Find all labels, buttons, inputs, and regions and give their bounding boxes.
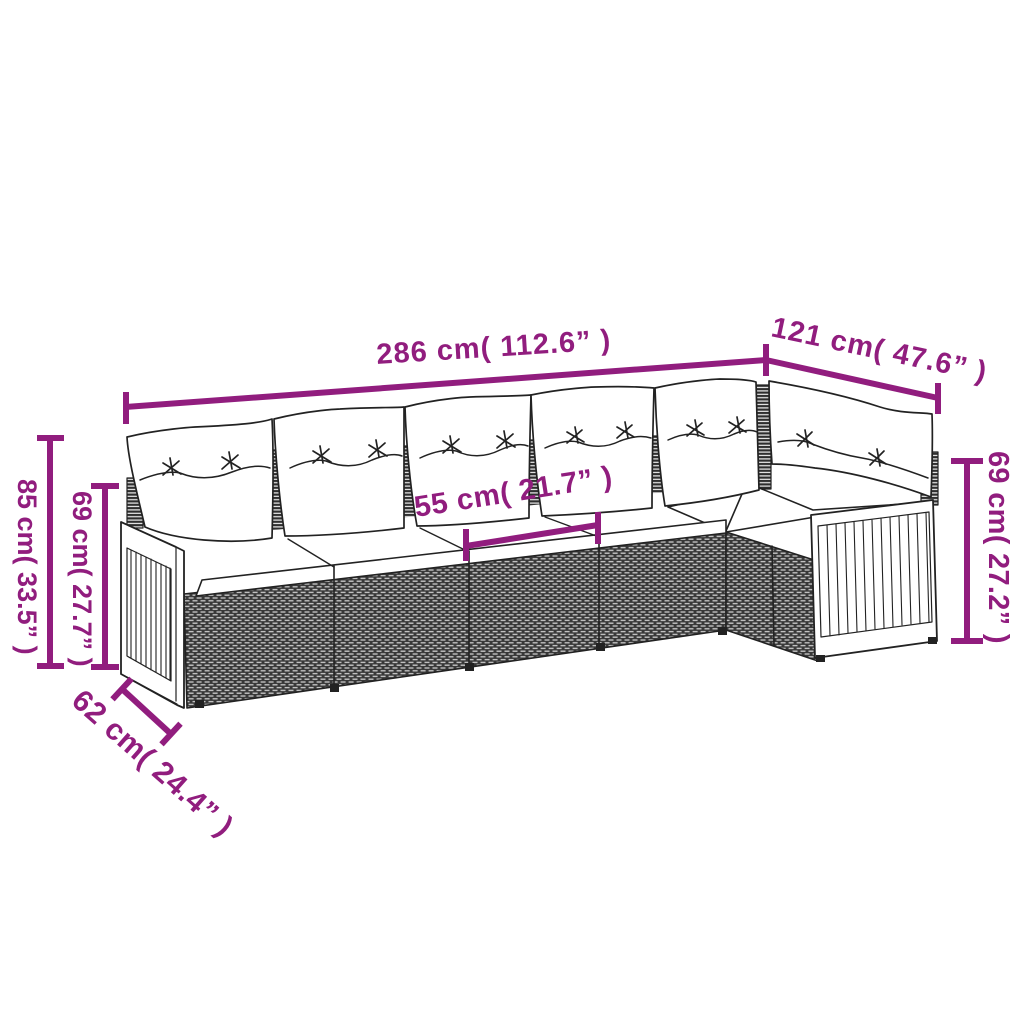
- svg-text:85 cm( 33.5” ): 85 cm( 33.5” ): [12, 479, 42, 655]
- svg-text:69 cm( 27.2” ): 69 cm( 27.2” ): [982, 451, 1014, 644]
- svg-text:69 cm( 27.7” ): 69 cm( 27.7” ): [67, 491, 97, 667]
